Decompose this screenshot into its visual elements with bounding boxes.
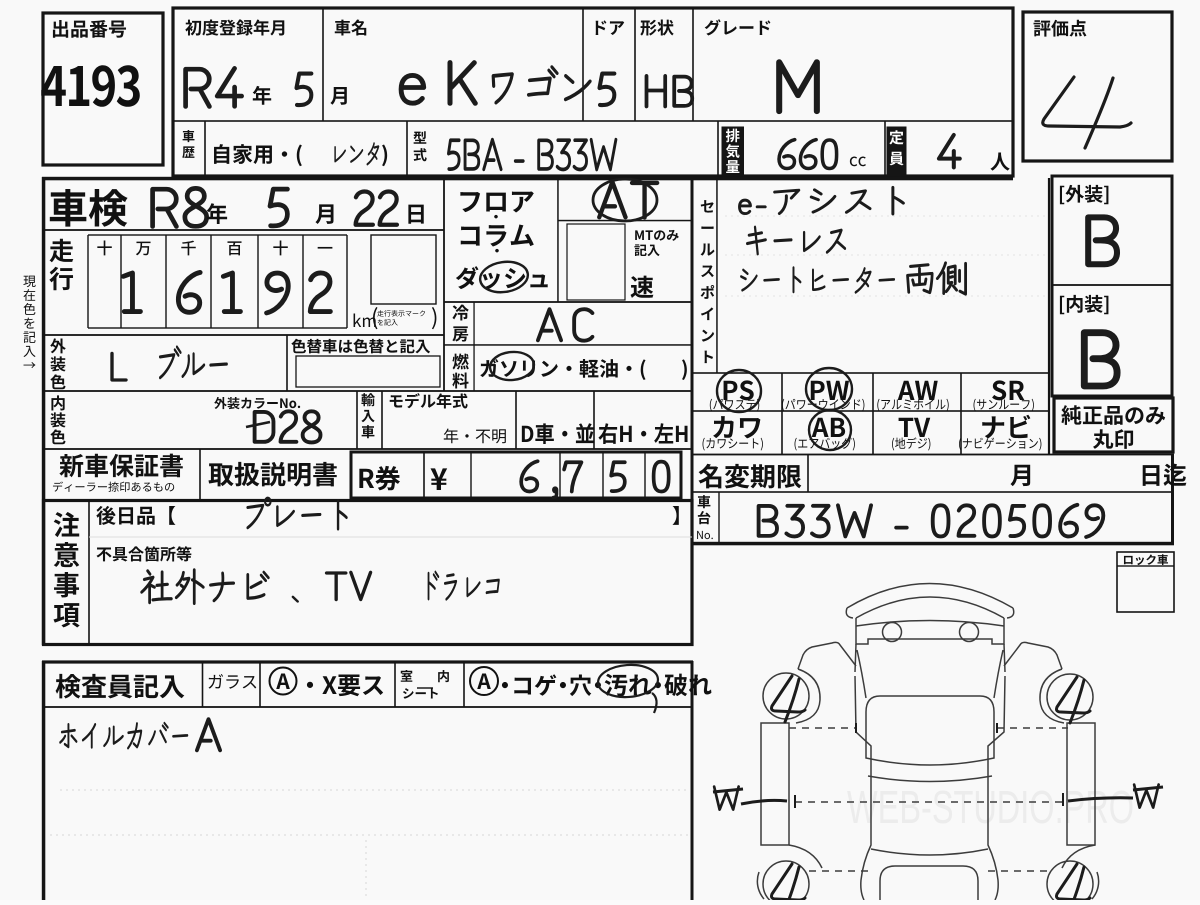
svg-text:WEB-STUDIO.PRO: WEB-STUDIO.PRO bbox=[847, 781, 1134, 833]
